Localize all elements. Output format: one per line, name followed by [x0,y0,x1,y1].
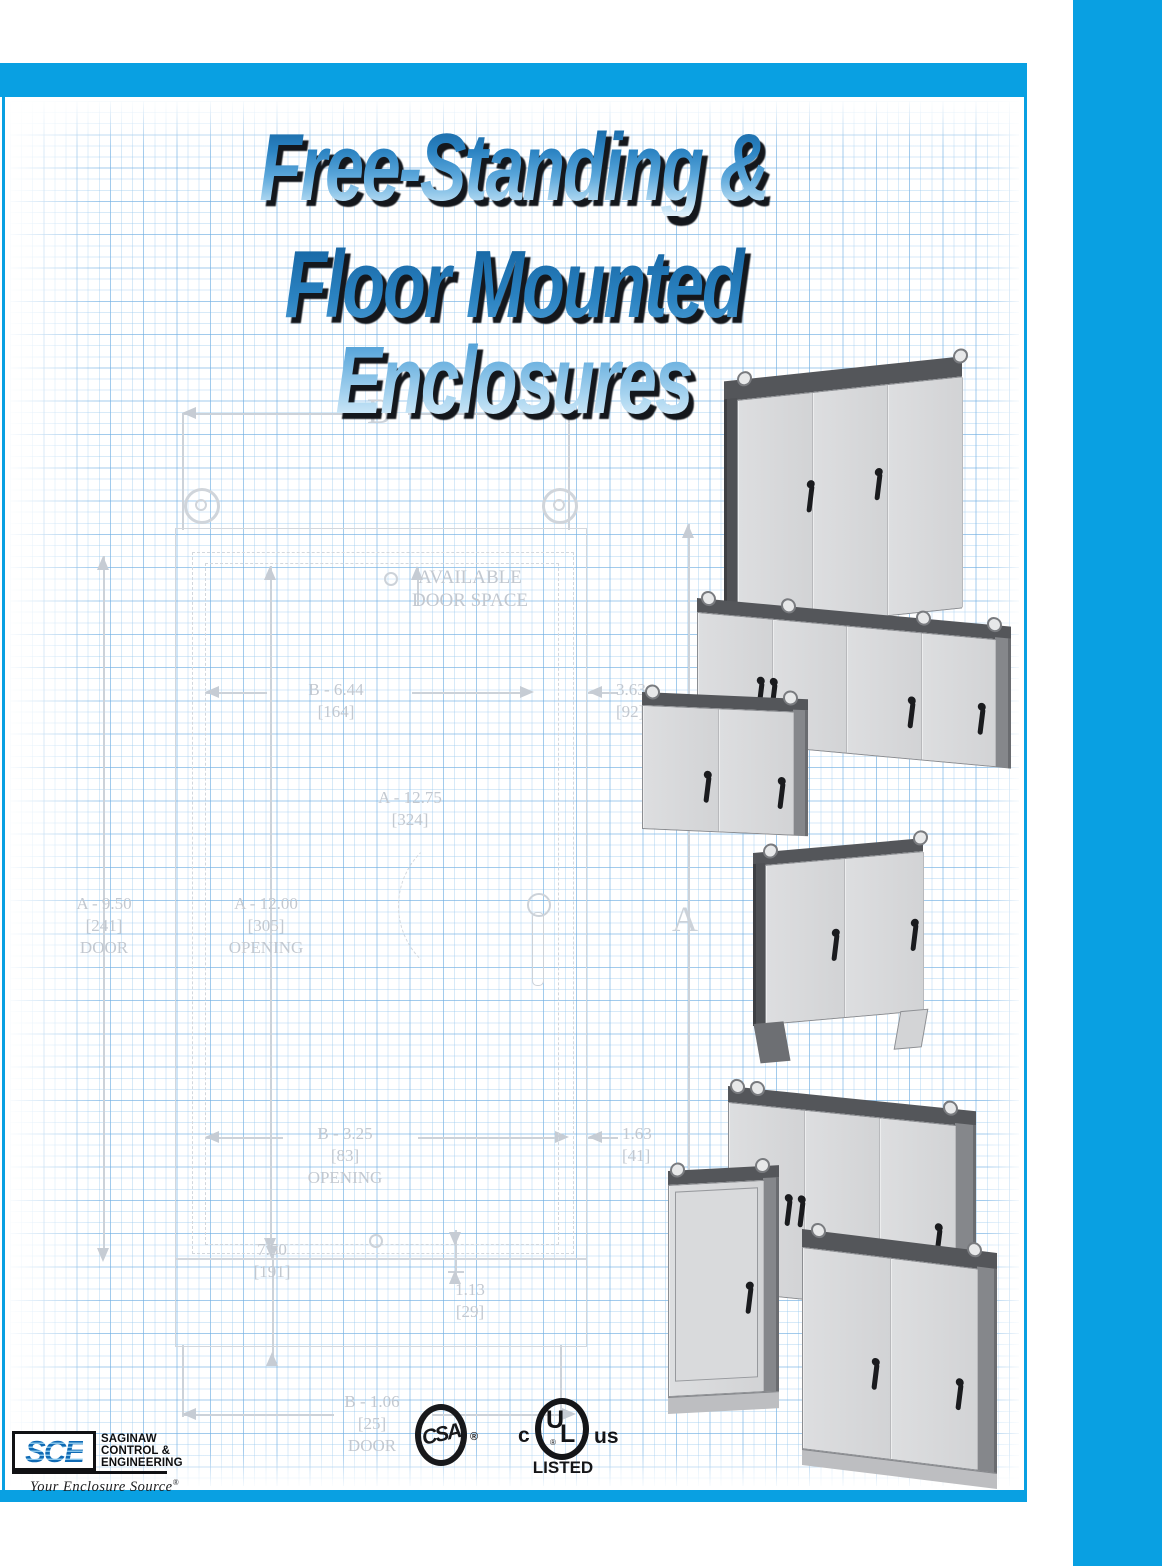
enclosure-side-face [793,710,808,837]
csa-circle: CSA [415,1404,467,1466]
sce-logo: SCE SAGINAW CONTROL & ENGINEERING Your E… [12,1431,182,1491]
ul-letter-l: L [560,1420,575,1449]
ul-listed-icon: c U L ® us LISTED [518,1398,628,1478]
csa-registered-mark: ® [470,1431,478,1443]
sce-logo-box: SCE [12,1431,96,1471]
door-panel [847,627,924,760]
sce-letters: SCE [25,1436,83,1467]
title-line-2-text: Floor Mounted Enclosures [139,237,889,429]
lifting-eye-icon [987,616,1002,632]
door-panel [891,1259,979,1470]
ul-listed-text: LISTED [532,1458,594,1478]
csa-certification-icon: CSA ® [415,1404,495,1474]
lifting-eye-icon [645,684,660,700]
floor-stand-left [753,1021,790,1063]
enclosure-two-door-wide [642,705,793,836]
enclosure-side-face [753,863,765,1026]
right-blue-band [1073,0,1162,1566]
enclosure-side-face [995,637,1011,768]
enclosure-side-face [977,1266,997,1487]
enclosure-two-door-front [802,1247,977,1470]
lifting-eye-icon [701,590,716,606]
door-panel [719,709,795,834]
ul-registered-mark: ® [550,1438,556,1447]
sce-company-line3: ENGINEERING [101,1457,183,1469]
sce-tagline: Your Enclosure Source® [30,1478,179,1496]
door-panel [803,1248,893,1459]
sce-company-name: SAGINAW CONTROL & ENGINEERING [101,1433,183,1470]
lifting-eye-icon [913,830,928,846]
catalog-cover-page: { "colors": { "accent_blue": "#09a0e2", … [0,0,1162,1566]
floor-stand-right [894,1009,929,1050]
enclosure-front-face [802,1247,977,1470]
enclosure-side-face [763,1177,779,1408]
enclosure-two-door-floor-stands [765,851,923,1025]
sce-company-line1: SAGINAW [101,1433,183,1445]
title-line-2: Floor Mounted Enclosures Floor Mounted E… [0,237,1027,429]
sce-company-line2: CONTROL & [101,1445,183,1457]
ul-canada-c: c [518,1424,530,1448]
title-line-1-text: Free-Standing & [139,120,889,216]
sce-logo-rule [12,1471,167,1474]
door-panel [922,633,997,766]
sce-registered-mark: ® [173,1478,180,1487]
enclosure-single-door-tall [668,1180,763,1397]
ul-us: us [594,1425,619,1449]
lifting-eye-icon [943,1100,958,1117]
csa-letters: CSA [420,1419,462,1450]
enclosure-front-face [765,851,923,1025]
enclosure-front-face [642,705,793,836]
door-panel [643,706,721,831]
title-line-1: Free-Standing & Free-Standing & [0,120,1027,216]
